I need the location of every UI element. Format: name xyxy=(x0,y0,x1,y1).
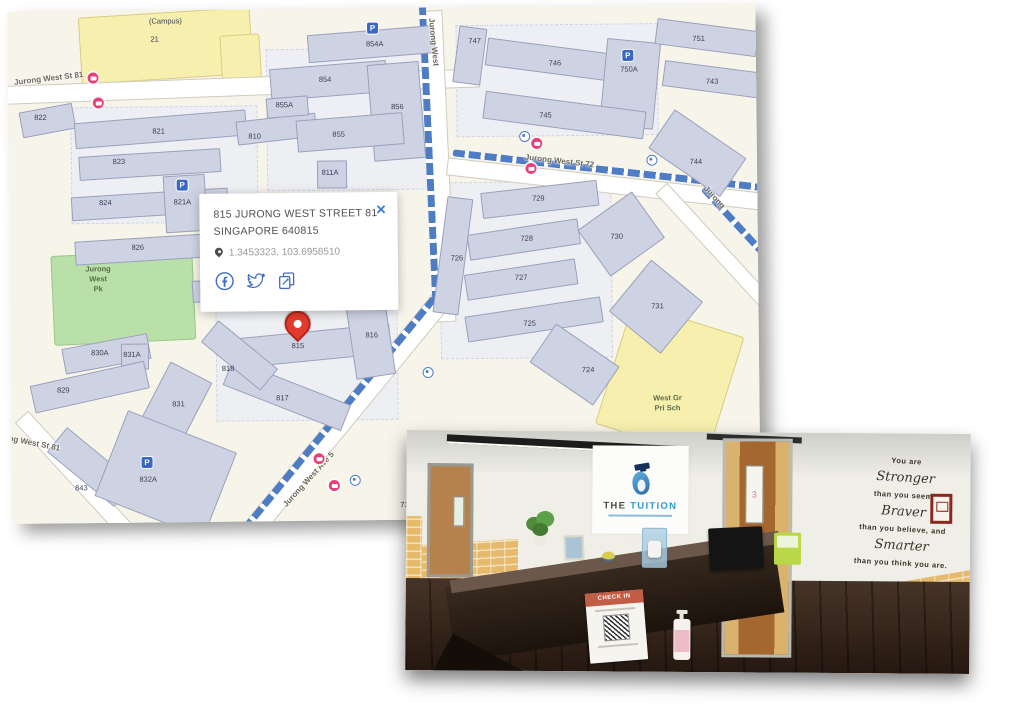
acrylic-stand xyxy=(642,528,667,568)
brand-tuition: TUITION xyxy=(630,500,677,511)
map-building-label: 821 xyxy=(152,128,165,136)
brand-the: THE xyxy=(603,500,626,511)
left-door-window xyxy=(453,496,464,526)
map-building-label: 21 xyxy=(150,36,158,44)
qr-code xyxy=(603,613,631,641)
owl-icon xyxy=(627,463,653,495)
cycling-path-icon xyxy=(519,131,530,142)
map-building-label: 747 xyxy=(468,37,481,45)
coordinates-text: 1.3453323, 103.6958510 xyxy=(229,246,340,258)
map-building-label: 731 xyxy=(651,302,664,310)
popup-address-line2: SINGAPORE 640815 xyxy=(214,222,384,241)
map-building-label: 817 xyxy=(276,394,289,402)
map-building-label: 818 xyxy=(222,365,235,373)
map-building xyxy=(19,103,77,138)
location-pin-icon xyxy=(213,246,224,257)
map-building-label: 745 xyxy=(539,111,552,119)
doorbell-device xyxy=(648,541,661,558)
right-door-window: 3 xyxy=(745,465,763,523)
map-building-label: 854 xyxy=(319,76,332,84)
check-in-sign: CHECK IN xyxy=(585,589,648,663)
map-building-label: 832A xyxy=(139,476,157,484)
cycling-path-icon xyxy=(350,475,361,486)
fire-hose-sign xyxy=(930,494,952,524)
map-building-label: 726 xyxy=(451,254,464,262)
map-building-label: 725 xyxy=(523,320,536,328)
map-area-label: West Gr Pri Sch xyxy=(653,393,682,413)
left-door xyxy=(427,463,474,577)
brand-tagline xyxy=(608,514,672,516)
map-building-label: 750A xyxy=(620,66,638,74)
facebook-icon[interactable] xyxy=(214,270,235,291)
map-building-label: 744 xyxy=(690,158,703,166)
map-building-label: 831 xyxy=(172,400,185,408)
map-building-label: 743 xyxy=(706,78,719,86)
map-building-label: 855 xyxy=(332,131,345,139)
map-building-label: 810 xyxy=(248,133,261,141)
quote-line: than you think you are. xyxy=(841,555,959,571)
cycling-path-icon xyxy=(646,155,657,166)
map-building xyxy=(654,18,758,57)
quote-line: You are xyxy=(847,453,965,469)
map-building-label: 829 xyxy=(57,387,70,395)
map-building xyxy=(367,61,427,162)
green-box xyxy=(774,533,801,565)
parking-icon: P xyxy=(142,457,153,468)
desk-bowl xyxy=(602,551,615,561)
cycling-path-icon xyxy=(423,367,434,378)
map-building-label: 855A xyxy=(276,101,294,109)
map-building-label: 751 xyxy=(692,35,705,43)
map-building-label: 746 xyxy=(549,59,562,67)
quote-line: Smarter xyxy=(842,535,961,557)
bus-stop-icon xyxy=(87,72,98,83)
map-building-label: 811A xyxy=(322,169,339,177)
tuition-logo: THE TUITION xyxy=(592,445,689,534)
desk-photo-frame xyxy=(563,535,584,561)
parking-icon: P xyxy=(367,23,378,34)
map-building-label: 822 xyxy=(34,114,47,122)
map-building-label: 823 xyxy=(113,158,126,166)
map-building-label: 724 xyxy=(582,366,595,374)
map-building-label: 821A xyxy=(174,198,192,206)
map-building-label: 826 xyxy=(132,244,145,252)
map-building-label: (Campus) xyxy=(149,17,182,25)
popup-address-line1: 815 JURONG WEST STREET 81 xyxy=(213,205,383,224)
map-building-label: 854A xyxy=(366,40,384,48)
map-building-label: 856 xyxy=(391,103,404,111)
popup-share-row xyxy=(214,269,384,292)
bus-stop-icon xyxy=(93,97,104,108)
parking-icon: P xyxy=(177,180,188,191)
map-building-label: 727 xyxy=(515,274,528,282)
map-building-label: 830A xyxy=(91,349,109,357)
map-building-label: 816 xyxy=(365,331,378,339)
wall-quote: You areStrongerthan you seem,Braverthan … xyxy=(836,448,966,665)
map-building-label: 729 xyxy=(532,195,545,203)
map-building-label: 843 xyxy=(75,484,88,492)
parking-icon: P xyxy=(622,50,633,61)
copy-link-icon[interactable] xyxy=(276,270,297,291)
quote-line: Stronger xyxy=(846,467,965,489)
map-building-label: 831A xyxy=(123,351,141,359)
map-building-label: 730 xyxy=(610,233,623,241)
map-park-area xyxy=(50,250,196,346)
map-popup: ✕ 815 JURONG WEST STREET 81 SINGAPORE 64… xyxy=(199,192,398,312)
popup-coordinates-row: 1.3453323, 103.6958510 xyxy=(214,246,384,259)
reception-photo: 3 THE TUITION You areStrongerthan you se… xyxy=(405,430,971,674)
bus-stop-icon xyxy=(313,453,324,464)
map-building-label: 728 xyxy=(520,235,533,243)
desk-monitor xyxy=(708,526,764,570)
bus-stop-icon xyxy=(531,138,542,149)
map-area-label: Jurong West Pk xyxy=(85,264,111,294)
sanitizer-bottle xyxy=(673,610,690,660)
close-icon[interactable]: ✕ xyxy=(375,202,386,218)
bus-stop-icon xyxy=(525,163,536,174)
page: 822821810823824821A826819854A854855A8568… xyxy=(0,0,1024,724)
twitter-icon[interactable] xyxy=(245,270,266,291)
map-building-label: 815 xyxy=(292,342,305,350)
bus-stop-icon xyxy=(329,480,340,491)
map-building-label: 824 xyxy=(99,199,112,207)
brand-text: THE TUITION xyxy=(603,500,677,512)
desk-plant xyxy=(524,511,558,545)
